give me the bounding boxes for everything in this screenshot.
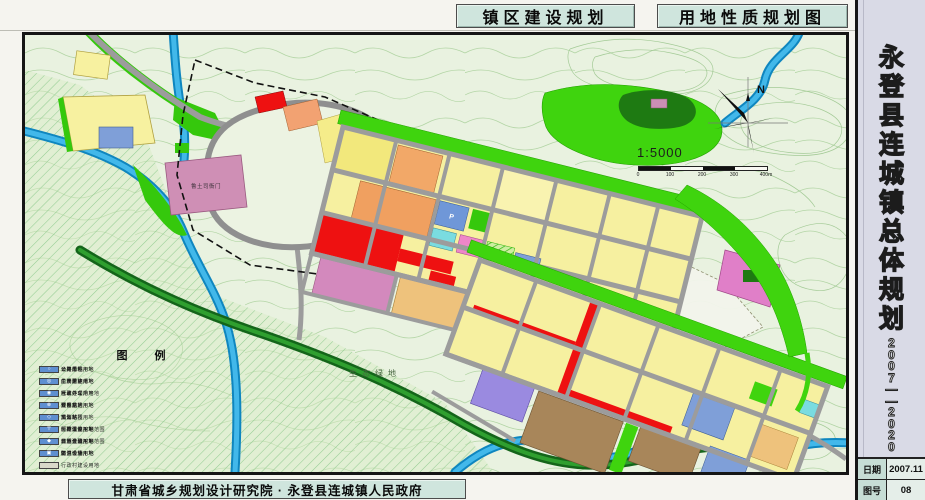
footer-strip: 甘肃省城乡规划设计研究院 · 永登县连城镇人民政府 (0, 476, 855, 500)
sheet-info-table: 日期 2007.11 图号 08 (858, 457, 925, 500)
yamen-label: 鲁土司衙门 (191, 182, 221, 190)
legend-item: ◎给水设施用地 (39, 377, 100, 385)
legend-item: ◉污水处理厂 (39, 389, 100, 397)
eco-green-label: 生态绿地 (349, 368, 401, 378)
legend-swatch (39, 462, 59, 469)
legend: 图 例 一类居住用地二类居住用地行政办公用地教育机构用地文体科技用地✚医疗保健用… (39, 349, 324, 469)
sheet-title-right: 用地性质规划图 (657, 4, 848, 28)
legend-swatch: ○ (39, 366, 59, 373)
sheet-number-row: 图号 08 (858, 480, 925, 500)
legend-item: ◇热力站 (39, 413, 100, 421)
legend-swatch: ◇ (39, 414, 59, 421)
scale-text: 1:5000 (637, 145, 683, 160)
sidebar-years: 2007——2020 (858, 338, 925, 453)
legend-swatch: ◉ (39, 390, 59, 397)
legend-column-4: ○公用工程用地◎给水设施用地◉污水处理厂⊗变电站◇热力站〒邮政设施用地◆燃气设施… (39, 365, 100, 473)
legend-swatch: 〒 (39, 426, 59, 433)
date-row: 日期 2007.11 (858, 459, 925, 480)
legend-swatch: ◆ (39, 438, 59, 445)
legend-title: 图 例 (87, 347, 207, 363)
map-panel: 鲁土司衙门 P (22, 32, 849, 475)
legend-item: ◆燃气设施用地 (39, 437, 100, 445)
legend-swatch: ▣ (39, 450, 59, 457)
scale-ticks: 0100200300400m (638, 171, 770, 178)
sheet-number-label: 图号 (858, 480, 887, 500)
sidebar-title: 永登县连城镇总体规划 (858, 44, 925, 334)
date-label: 日期 (858, 459, 887, 479)
sheet-number-value: 08 (887, 480, 925, 500)
legend-swatch: ◎ (39, 378, 59, 385)
legend-item: ▣环卫设施用地 (39, 449, 100, 457)
legend-item: ⊗变电站 (39, 401, 100, 409)
date-value: 2007.11 (887, 459, 925, 479)
north-label: N (757, 84, 765, 96)
planning-sheet: 镇区建设规划 用地性质规划图 (0, 0, 925, 500)
legend-item: 行政村建设用地 (39, 461, 100, 469)
header-strip: 镇区建设规划 用地性质规划图 (0, 0, 855, 31)
credit-box: 甘肃省城乡规划设计研究院 · 永登县连城镇人民政府 (68, 479, 466, 499)
legend-swatch: ⊗ (39, 402, 59, 409)
scale-bar: 0100200300400m (638, 166, 770, 178)
sheet-title-left: 镇区建设规划 (456, 4, 635, 28)
legend-item: 〒邮政设施用地 (39, 425, 100, 433)
legend-item: ○公用工程用地 (39, 365, 100, 373)
sidebar: 永登县连城镇总体规划 2007——2020 日期 2007.11 图号 08 (855, 0, 925, 500)
